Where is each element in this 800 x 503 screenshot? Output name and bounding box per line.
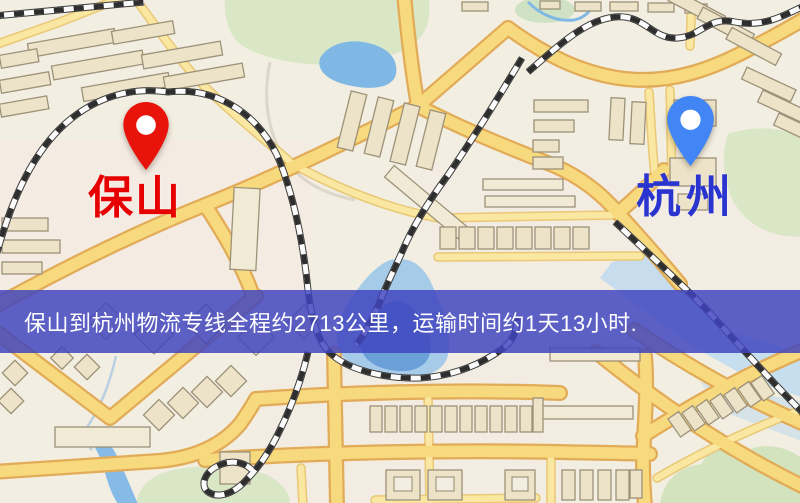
origin-city-label: 保山 (88, 176, 182, 221)
map-screenshot: 保山 杭州 保山到杭州物流专线全程约2713公里，运输时间约1天13小时. (0, 0, 800, 503)
route-info-banner: 保山到杭州物流专线全程约2713公里，运输时间约1天13小时. (0, 290, 800, 353)
destination-pin[interactable] (667, 96, 714, 166)
destination-city-label: 杭州 (636, 175, 736, 220)
origin-map-pin-icon (123, 102, 169, 170)
map-canvas (0, 0, 800, 503)
destination-map-pin-icon (667, 96, 714, 166)
origin-pin[interactable] (123, 102, 169, 170)
route-info-text: 保山到杭州物流专线全程约2713公里，运输时间约1天13小时. (24, 306, 637, 338)
